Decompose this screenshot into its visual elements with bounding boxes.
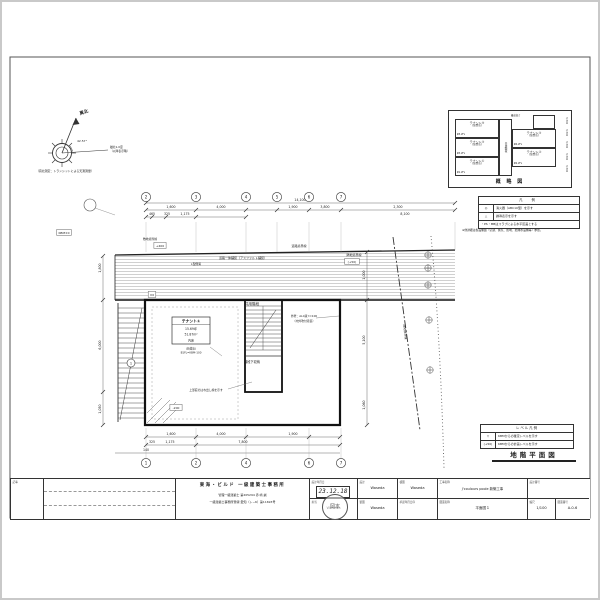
schematic-max-height-label: 最高高さ	[511, 113, 521, 117]
unit-level: ▼4.2FL	[514, 144, 522, 147]
compass-note-2: （以降表示略）	[110, 149, 130, 153]
tenant-sub-2: B1FL=KBM-100	[181, 351, 202, 355]
drawing-name: 平面図１	[438, 506, 527, 511]
project-name: J'coulours poole 新築工事	[438, 486, 527, 491]
dimension-label: 1,900	[288, 205, 297, 209]
dimension-label: 465	[149, 212, 155, 216]
titleblock-number-cell: 設計番号 縮尺 1/100 図面番号 A-0-6	[528, 479, 589, 519]
schematic-stair-column: 共用階段	[499, 119, 512, 176]
schematic-dim: 3,300	[560, 141, 568, 148]
titleblock-check-cell: 検図 Waseda 承認年月日印	[398, 479, 438, 519]
unit-sub: (飲食店)	[456, 125, 498, 128]
drawing-number: A-0-6	[556, 506, 589, 510]
fire-legend: 凡 例 ◎ 消火器（ABC10型）を示す △ 誘導表示を示す ・PS・MBはスラ…	[478, 196, 580, 229]
design-number-label: 設計番号	[530, 480, 540, 484]
dimension-label: 6,000	[98, 340, 102, 349]
plan-level-symbol: (+50)	[481, 441, 496, 448]
legend-text: 誘導表示を示す	[494, 213, 579, 220]
tanto-label: 担当	[312, 500, 317, 504]
tenant-name: テナント①	[182, 319, 200, 324]
plan-annotation: 隣地境界線	[402, 324, 409, 340]
titleblock-notes-cell: 記事	[10, 479, 44, 519]
drawing-name-label: 図面名称	[440, 500, 450, 504]
level-legend-text: KBMからの計画レベルを示す	[496, 441, 573, 448]
grid-bubble-bottom-label: 2	[195, 461, 198, 466]
seizu-label: 製図	[360, 500, 365, 504]
level-legend-row: ▽ KBMからの確定レベルを示す	[481, 433, 573, 441]
dimension-label: 1,000	[362, 270, 366, 279]
dimension-label: 14,100	[294, 198, 305, 202]
schematic-roof-step	[533, 115, 555, 129]
dimension-label: 4,000	[216, 205, 225, 209]
schematic-unit-5: テナント⑤ (飲食店) ▼5.2FL	[455, 119, 499, 138]
plan-annotation: 道路一体舗装（アスファルト舗装）	[219, 255, 267, 260]
schematic-dim: 3,300	[560, 129, 568, 136]
schematic-title: 概 略 図	[449, 178, 571, 185]
legend-row: ◎ 消火器（ABC10型）を示す	[479, 205, 579, 213]
tenant-area-tsubo: 15.69坪	[185, 326, 197, 331]
dimension-label: 2,300	[393, 205, 402, 209]
level-legend: レベル凡例 ▽ KBMからの確定レベルを示す (+50) KBMからの計画レベル…	[480, 424, 574, 449]
unit-sub: (飲食店)	[456, 144, 498, 147]
level-tag: -200	[173, 406, 180, 410]
dimension-label: 1,900	[288, 432, 297, 436]
drawing-number-label: 図面番号	[558, 500, 568, 504]
unit-level: ▼5.2FL	[457, 134, 465, 137]
grid-bubble-bottom-label: 7	[340, 461, 343, 466]
schematic-unit-1: テナント① (飲食店) ▼1.2FL	[455, 157, 499, 176]
titleblock-firm-cell: 東海・ビルド 一級建築士事務所 管理一級建築士 第205294 赤 崎 誠 一級…	[176, 479, 310, 519]
titleblock-revision-cell	[44, 479, 176, 519]
level-tag: +400	[156, 244, 164, 248]
unit-sub: (飲食店)	[513, 154, 555, 157]
grid-bubble-top-label: 5	[276, 195, 279, 200]
grid-bubble-top-label: 3	[195, 195, 198, 200]
level-tag: KBM±0	[58, 231, 69, 235]
grid-bubble-bottom-label: 4	[245, 461, 248, 466]
plan-annotation: 敷地境界線	[143, 237, 157, 241]
plan-annotation: 隣地境界線	[346, 252, 361, 257]
plan-annotation: 共用階段	[245, 301, 260, 306]
schematic-diagram: テナント⑤ (飲食店) ▼5.2FL テナント③ (飲食店) ▼3.2FL テナ…	[448, 110, 572, 188]
scale-label: 縮尺	[530, 500, 535, 504]
firm-registration-1: 管理一級建築士 第205294 赤 崎 誠	[176, 493, 309, 497]
kenzu-value: Waseda	[398, 486, 437, 490]
legend-title: 凡 例	[479, 197, 579, 205]
level-legend-row: (+50) KBMからの計画レベルを示す	[481, 441, 573, 448]
unit-level: ▼1.2FL	[457, 172, 465, 175]
titleblock-project-cell: 工事名称 J'coulours poole 新築工事 図面名称 平面図１	[438, 479, 528, 519]
plan-annotation: L型側溝	[191, 262, 201, 266]
guide-sign-symbol: △	[479, 213, 494, 220]
grid-bubble-top-label: 6	[308, 195, 311, 200]
unit-sub: (飲食店)	[513, 135, 555, 138]
unit-sub: (飲食店)	[456, 163, 498, 166]
level-tag: ±0	[150, 293, 155, 297]
dimension-label: 325	[149, 440, 155, 444]
notes-label: 記事	[13, 480, 18, 484]
level-legend-title: レベル凡例	[481, 425, 573, 433]
grid-bubble-top-label: 2	[145, 195, 148, 200]
legend-text: 消火器（ABC10型）を示す	[494, 205, 579, 212]
dimension-label: 1,050	[98, 404, 102, 413]
firm-name: 東海・ビルド 一級建築士事務所	[176, 482, 309, 488]
dimension-label: 1,175	[165, 440, 174, 444]
scale-value: 1/100	[528, 506, 555, 510]
legend-footer: ・PS・MBはスラブによる水平区画とする	[479, 221, 537, 228]
dimension-label: 3,800	[320, 205, 329, 209]
tenant-area-m2: 51.87m²	[184, 333, 198, 337]
sekkei-value: Waseda	[358, 486, 397, 490]
seizu-value: Waseda	[358, 506, 397, 510]
compass-angle: 42.57°	[77, 139, 88, 143]
kenzu-label: 検図	[400, 480, 405, 484]
dimension-label: 5,100	[362, 335, 366, 344]
plan-annotation: 道路境界線	[291, 243, 306, 248]
title-block: 記事 東海・ビルド 一級建築士事務所 管理一級建築士 第205294 赤 崎 誠…	[10, 478, 590, 520]
schematic-dim: 3,300	[560, 117, 568, 124]
dimension-label: 8,100	[400, 212, 409, 216]
dimension-label: 1,800	[98, 263, 102, 272]
stair-number: 1	[130, 362, 132, 366]
revision-row	[44, 479, 175, 492]
compass-north-label: 真北	[78, 107, 89, 117]
schematic-unit-4: テナント④ (飲食店) ▼4.2FL	[512, 129, 556, 148]
revision-row	[44, 492, 175, 505]
plan-annotation: 階段下収納	[244, 359, 260, 364]
level-tag: (+50)	[348, 260, 357, 264]
dimension-label: 4,000	[216, 432, 225, 436]
schematic-unit-3: テナント③ (飲食店) ▼3.2FL	[455, 138, 499, 157]
schematic-dim: 3,300	[560, 165, 568, 172]
reference-bubble	[84, 199, 96, 211]
revision-row	[44, 506, 175, 519]
level-legend-text: KBMからの確定レベルを示す	[496, 433, 573, 440]
extinguisher-symbol: ◎	[479, 205, 494, 212]
legend-note: ※他詳細は各設備図（空調、換気、照明、給排水設備等）参照。	[462, 228, 588, 232]
dimension-label: 325	[164, 212, 170, 216]
dimension-label: 1,060	[362, 400, 366, 409]
approval-seal: 岡本	[322, 494, 348, 520]
sekkei-label: 設計	[360, 480, 365, 484]
approval-label: 承認年月日印	[400, 500, 416, 504]
drawing-title: 地階平面図	[492, 449, 576, 462]
plan-annotation: 外壁：ALC版 t=100	[291, 314, 318, 318]
unit-level: ▼3.2FL	[457, 153, 465, 156]
dimension-label: 7,800	[238, 440, 247, 444]
schematic-unit-2: テナント② (飲食店) ▼2.2FL	[512, 148, 556, 167]
grid-bubble-top-label: 7	[340, 195, 343, 200]
dimension-label: 140	[143, 448, 149, 452]
dimension-label: 1,600	[166, 432, 175, 436]
schematic-dim: 3,300	[560, 153, 568, 160]
reference-leader	[95, 208, 115, 215]
grid-bubble-top-label: 4	[245, 195, 248, 200]
grid-bubble-bottom-label: 1	[145, 461, 148, 466]
road-pavement-hatch	[115, 250, 455, 300]
unit-level: ▼2.2FL	[514, 163, 522, 166]
plan-annotation: 上部庇のはね出し線を示す	[189, 388, 223, 392]
legend-row: △ 誘導表示を示す	[479, 213, 579, 221]
design-date-label: 設計年月日	[312, 480, 325, 484]
fixed-level-symbol: ▽	[481, 433, 496, 440]
project-label: 工事名称	[440, 480, 450, 484]
compass-survey-note: （真北測定：トランシットによる天測測量）	[36, 168, 94, 173]
firm-registration-2: 一級建築士事務所登録 愛知（レ−6）第11693号	[176, 500, 309, 504]
titleblock-design-cell: 設計 Waseda 製図 Waseda	[358, 479, 398, 519]
plan-annotation: （内外吹付塗装）	[293, 319, 315, 323]
grid-bubble-bottom-label: 6	[308, 461, 311, 466]
tenant-floor: 内床	[188, 338, 194, 343]
dimension-label: 1,175	[180, 212, 189, 216]
dimension-label: 1,600	[166, 205, 175, 209]
